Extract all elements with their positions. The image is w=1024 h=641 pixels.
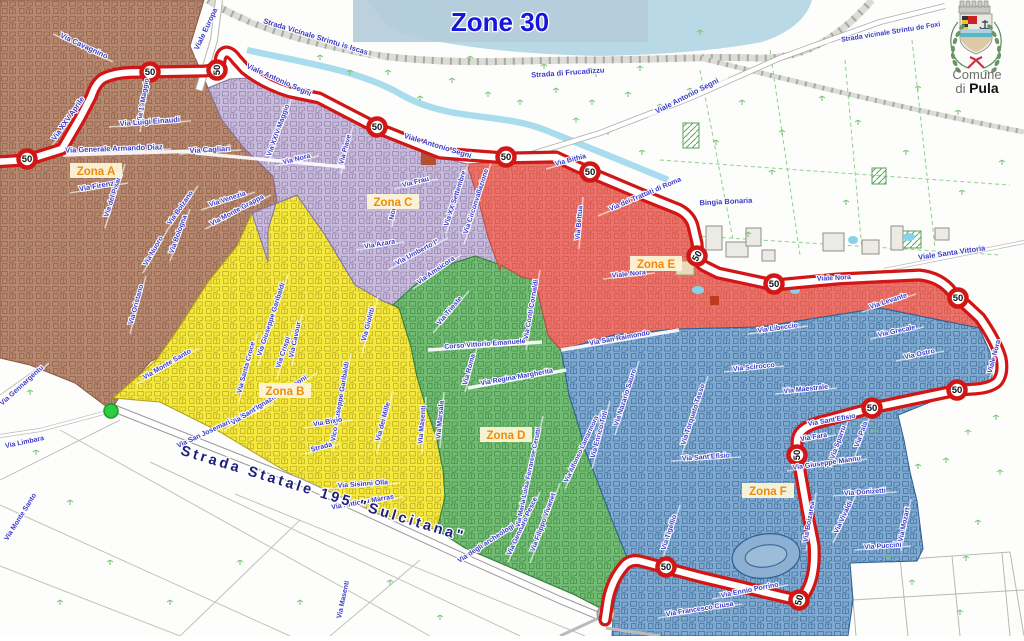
svg-text:50: 50: [867, 403, 878, 414]
svg-text:50: 50: [501, 152, 512, 163]
svg-text:Zona F: Zona F: [749, 486, 787, 498]
svg-text:50: 50: [145, 67, 156, 78]
svg-text:Zona A: Zona A: [77, 166, 116, 178]
svg-text:Zona B: Zona B: [266, 386, 305, 398]
svg-text:50: 50: [22, 154, 33, 165]
svg-text:50: 50: [792, 450, 803, 461]
svg-text:Zone 30: Zone 30: [451, 7, 549, 37]
svg-text:50: 50: [585, 167, 596, 178]
svg-text:50: 50: [661, 562, 672, 573]
svg-text:Zona C: Zona C: [374, 197, 413, 209]
svg-text:Zona E: Zona E: [637, 259, 676, 271]
svg-text:50: 50: [372, 122, 383, 133]
svg-text:di Pula: di Pula: [955, 80, 999, 96]
svg-text:50: 50: [953, 293, 964, 304]
svg-text:50: 50: [769, 279, 780, 290]
svg-text:Zona D: Zona D: [487, 430, 526, 442]
svg-text:50: 50: [952, 385, 963, 396]
svg-text:50: 50: [212, 65, 223, 76]
